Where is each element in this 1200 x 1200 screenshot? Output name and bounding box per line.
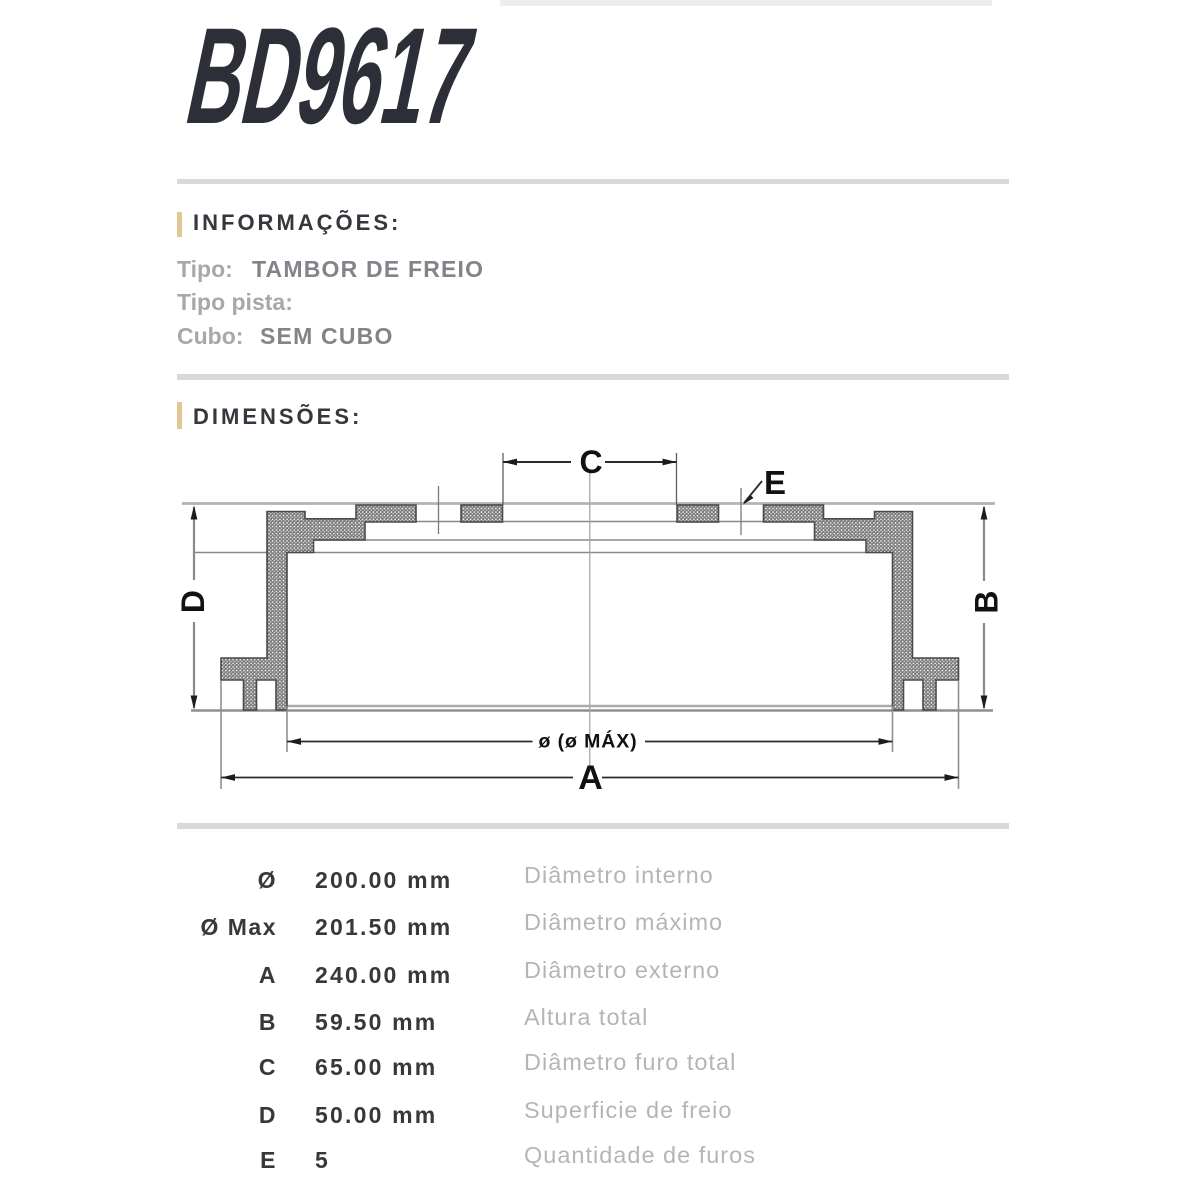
svg-text:E: E <box>764 464 786 501</box>
svg-text:D: D <box>175 590 211 613</box>
svg-text:B: B <box>969 590 1005 613</box>
svg-text:A: A <box>578 759 603 797</box>
svg-text:C: C <box>579 444 602 480</box>
svg-text:ø (ø MÁX): ø (ø MÁX) <box>538 730 637 753</box>
